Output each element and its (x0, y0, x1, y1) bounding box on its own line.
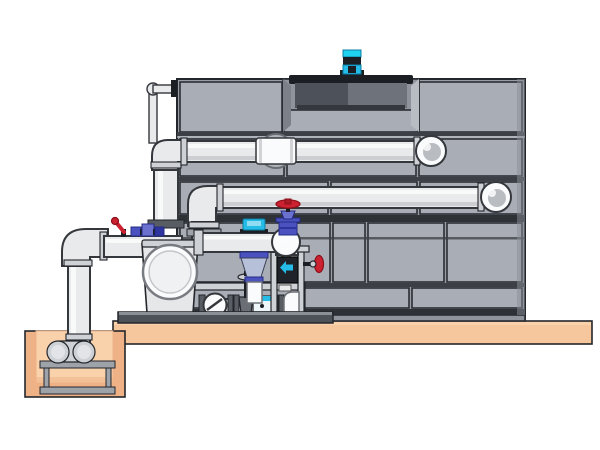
makeup-water-pipe (147, 80, 177, 143)
flow-sensor (240, 219, 268, 233)
illustration-canvas (0, 0, 600, 450)
stand-elbow-pipe (284, 292, 299, 312)
upper-riser-pipe (154, 166, 178, 224)
sump-pump (47, 341, 95, 363)
fan-motor (340, 50, 364, 77)
foundation (25, 321, 592, 397)
strainer-tank (142, 240, 198, 313)
makeup-pipe-flange (171, 80, 177, 97)
label-tag (279, 285, 291, 291)
fan-cowl (289, 75, 413, 110)
ball-valve-red (112, 218, 127, 238)
cooling-tower (177, 50, 525, 321)
skid-base (118, 312, 333, 323)
cooling-tower-diagram (0, 0, 600, 450)
